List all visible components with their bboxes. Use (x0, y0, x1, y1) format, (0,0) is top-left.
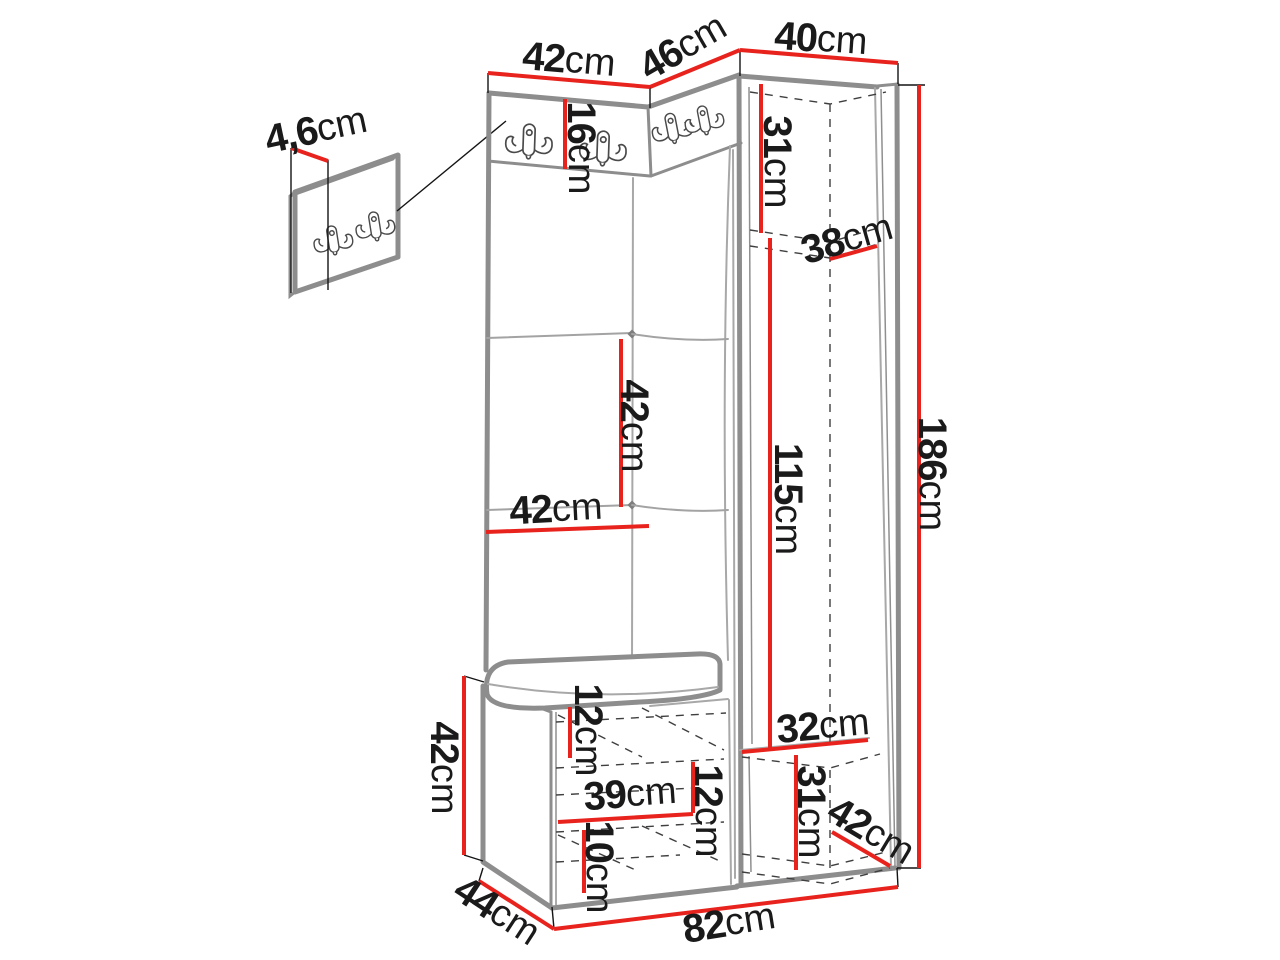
dim-label-top-width-angled: 46cm (632, 5, 735, 90)
dim-label-hook-strip-height: 16cm (559, 101, 603, 194)
hallway-furniture-dimension-diagram: 4,6cm 42cm 46cm 40cm 16cm 31cm 38cm 42cm… (0, 0, 1280, 960)
dim-label-shelf-depth: 38cm (796, 205, 898, 273)
dim-label-top-width-left: 42cm (521, 34, 618, 86)
main-panel-angled-face (632, 75, 741, 660)
dim-label-hanging-space-height: 115cm (766, 443, 810, 555)
dim-label-lower-compartment-depth: 42cm (820, 788, 923, 874)
wall-hook-panel (290, 155, 398, 296)
dim-label-lower-compartment-width: 32cm (775, 700, 872, 752)
dim-label-panel-section-height: 42cm (612, 379, 656, 472)
dim-label-total-width: 82cm (680, 894, 779, 952)
dim-label-upper-shelf-height: 31cm (755, 115, 799, 208)
dim-label-panel-thickness: 4,6cm (261, 98, 371, 163)
dim-label-lower-compartment-height: 31cm (789, 765, 833, 858)
coat-hook-icon (312, 223, 355, 258)
dim-label-bench-depth: 44cm (446, 867, 548, 955)
diagram-canvas: 4,6cm 42cm 46cm 40cm 16cm 31cm 38cm 42cm… (0, 0, 1280, 960)
coat-hook-icon (505, 123, 553, 159)
dim-label-bench-inner-width: 39cm (582, 769, 678, 819)
dim-label-bench-height: 42cm (422, 721, 466, 814)
dim-label-bench-bottom-shelf-height: 10cm (577, 820, 621, 913)
dim-label-panel-width: 42cm (508, 485, 603, 534)
dim-label-bench-middle-shelf-height: 12cm (686, 764, 730, 857)
dim-label-top-width-right: 40cm (773, 14, 869, 64)
hook-strip (505, 102, 726, 166)
dim-label-bench-top-shelf-height: 12cm (566, 683, 610, 776)
coat-hook-icon (354, 209, 397, 244)
dim-label-total-height: 186cm (910, 417, 954, 531)
